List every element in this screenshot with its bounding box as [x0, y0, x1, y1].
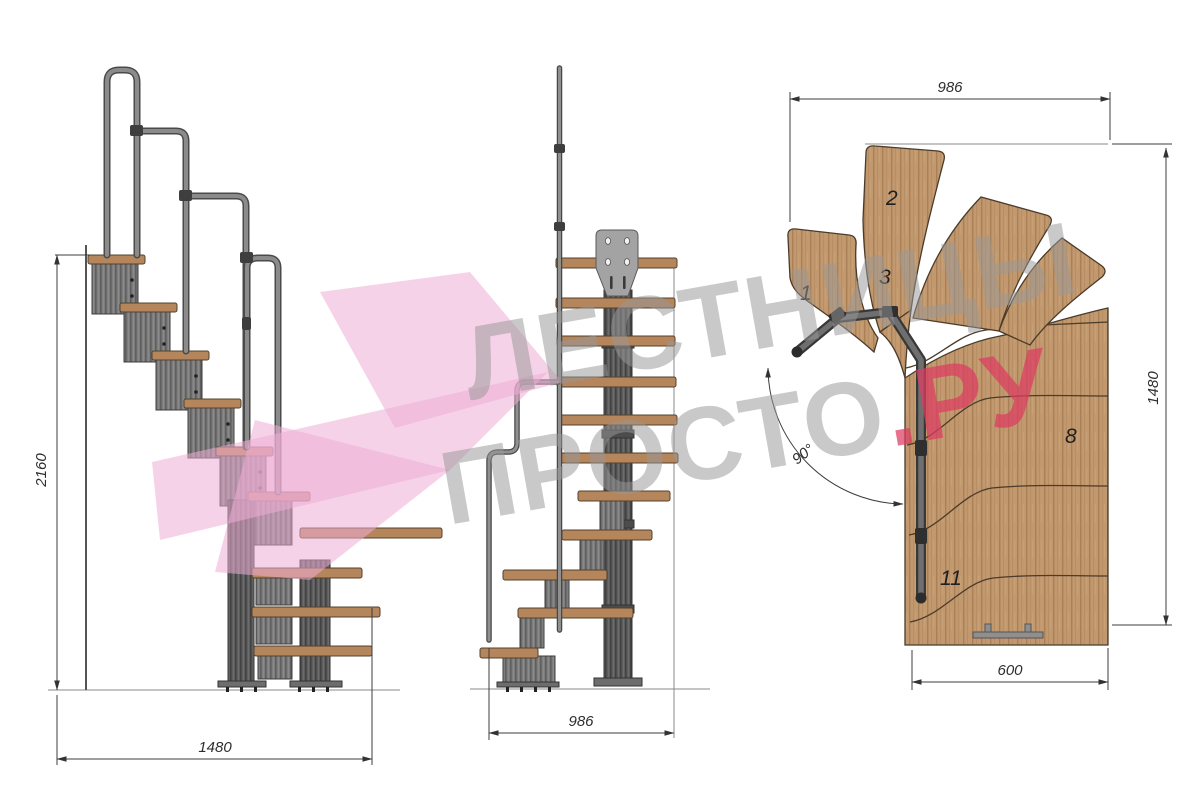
dim-height-side: 2160: [33, 453, 50, 488]
rail-clamp: [240, 252, 253, 263]
rail-joint: [915, 528, 927, 544]
dim-plan-top-width: 986: [937, 79, 963, 96]
step-number-8: 8: [1065, 425, 1077, 448]
dim-plan-bottom-width: 600: [997, 662, 1023, 679]
dim-width-side: 1480: [198, 739, 232, 756]
rail-sleeve: [242, 317, 251, 330]
step-number-2: 2: [885, 187, 898, 210]
dim-width-front: 986: [568, 713, 594, 730]
dim-plan-height: 1480: [1145, 371, 1162, 405]
column-foot: [594, 678, 642, 686]
step-number-11: 11: [940, 567, 962, 590]
drawing-svg: 2160 1480: [0, 0, 1200, 807]
rail-clamp: [130, 125, 143, 136]
stair-technical-drawing: 2160 1480: [0, 0, 1200, 807]
rail-clamp: [179, 190, 192, 201]
